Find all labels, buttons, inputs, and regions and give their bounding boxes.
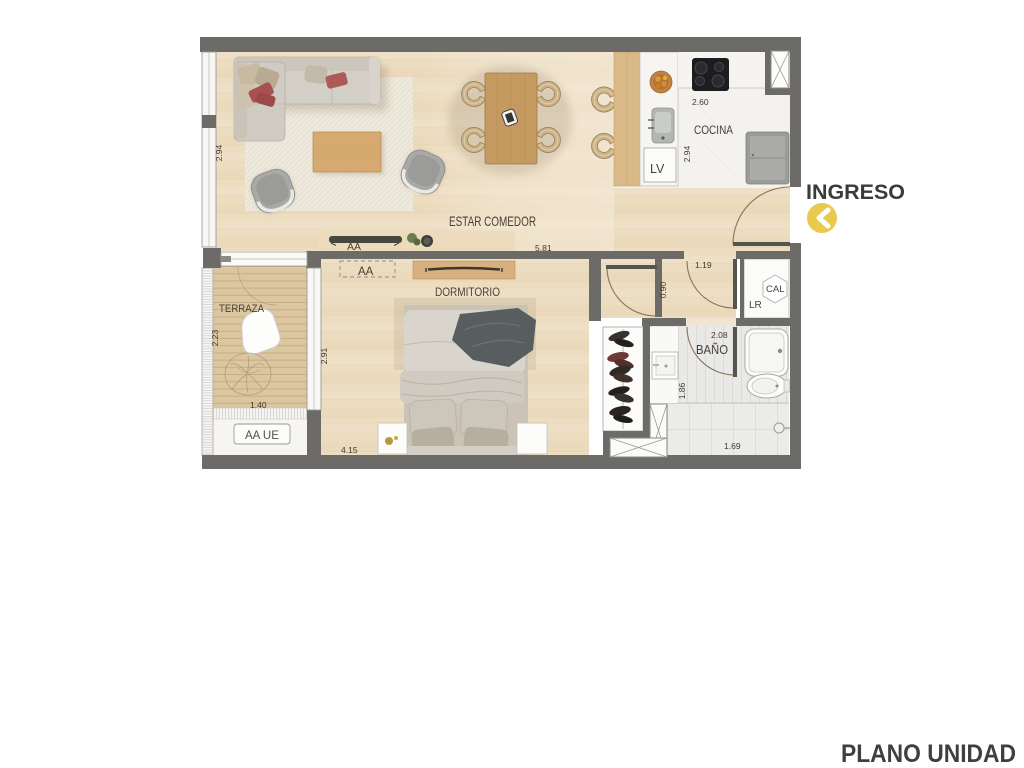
svg-text:5.81: 5.81: [535, 243, 552, 253]
svg-text:1.69: 1.69: [724, 441, 741, 451]
svg-text:2.91: 2.91: [319, 347, 329, 364]
svg-text:2.23: 2.23: [210, 329, 220, 346]
svg-text:2.60: 2.60: [692, 97, 709, 107]
svg-text:COCINA: COCINA: [694, 125, 733, 137]
svg-text:1.19: 1.19: [695, 260, 712, 270]
svg-text:DORMITORIO: DORMITORIO: [435, 287, 500, 299]
svg-text:1.40: 1.40: [250, 400, 267, 410]
svg-text:2.94: 2.94: [214, 144, 224, 161]
svg-text:TERRAZA: TERRAZA: [219, 303, 265, 315]
svg-text:1.86: 1.86: [677, 382, 687, 399]
svg-text:AA UE: AA UE: [245, 430, 279, 442]
svg-text:INGRESO: INGRESO: [806, 181, 905, 204]
svg-text:PLANO UNIDAD: PLANO UNIDAD: [841, 740, 1016, 768]
svg-text:2.94: 2.94: [682, 145, 692, 162]
svg-text:4.15: 4.15: [341, 445, 358, 455]
svg-text:LR: LR: [749, 300, 762, 311]
svg-text:CAL: CAL: [766, 284, 784, 295]
svg-text:BAÑO: BAÑO: [696, 342, 728, 357]
svg-text:AA: AA: [358, 266, 374, 278]
svg-text:LV: LV: [650, 162, 665, 176]
svg-text:2.08: 2.08: [711, 330, 728, 340]
svg-text:ESTAR COMEDOR: ESTAR COMEDOR: [449, 213, 536, 229]
svg-text:0.90: 0.90: [658, 281, 668, 298]
